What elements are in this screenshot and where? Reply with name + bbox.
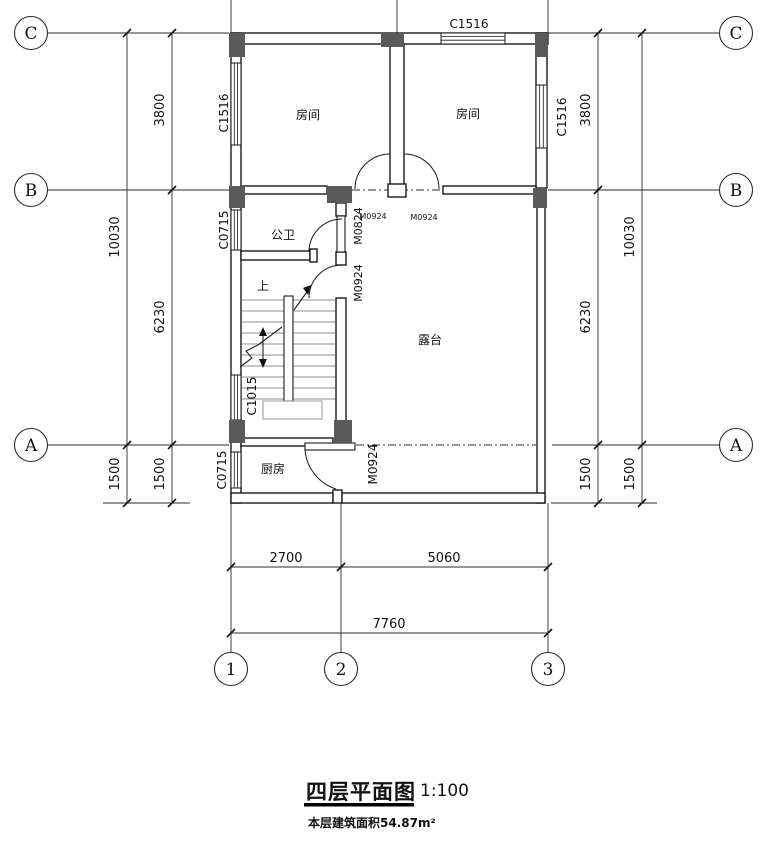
dim-bottom-7760: 7760: [372, 617, 405, 632]
dim-left-inner-6230: 6230: [153, 300, 168, 333]
axis-lines: [48, 0, 719, 652]
bathroom-bottom-jamb: [310, 249, 317, 262]
bottom-wall-jamb: [333, 490, 342, 503]
dim-bottom-5060: 5060: [427, 551, 460, 566]
axis-label-B-left: B: [25, 181, 38, 201]
label-window-right-room: C1516: [555, 98, 569, 137]
label-door-room-right: M0924: [410, 213, 437, 222]
stair-right-wall-mid: [336, 252, 346, 265]
room-divider-wall: [390, 44, 404, 190]
window-left-room-c1516: [231, 63, 241, 145]
dim-right-inner-6230: 6230: [579, 300, 594, 333]
stair-center-rail: [284, 296, 293, 401]
dim-left-inner-3800: 3800: [153, 93, 168, 126]
kitchen-door-leaf: [305, 443, 355, 450]
dimension-lines: [103, 33, 657, 633]
axis-label-2: 2: [336, 660, 347, 680]
label-kitchen: 厨房: [261, 461, 285, 476]
hall-door-arc: [309, 265, 342, 298]
dim-bottom-2700: 2700: [269, 551, 302, 566]
label-door-hall: M0924: [352, 264, 365, 302]
window-bathroom-c0715: [231, 210, 241, 250]
bottom-wall-left: [231, 493, 333, 503]
label-window-top: C1516: [450, 17, 489, 31]
stair-break-arrow-up: [259, 327, 267, 336]
dim-right-inner-3800: 3800: [579, 93, 594, 126]
dimension-texts: 10030 1500 3800 6230 1500 3800 6230 1500…: [108, 93, 638, 632]
dim-left-outer-1500: 1500: [108, 457, 123, 490]
label-room-left: 房间: [296, 107, 320, 122]
title-underline: [304, 803, 414, 807]
drawing-scale: 1:100: [420, 781, 469, 801]
bottom-wall-right: [342, 493, 545, 503]
terrace-railing: [537, 207, 545, 503]
kitchen-door-arc: [305, 450, 336, 489]
stair-break-arrow-down: [259, 359, 267, 368]
area-note: 本层建筑面积54.87m²: [308, 815, 436, 830]
dim-right-outer-10030: 10030: [623, 216, 638, 257]
b-wall-left: [241, 186, 327, 194]
bathroom-door-leaf: [337, 216, 345, 252]
stair-right-wall-top: [336, 203, 346, 216]
room-left-door-arc: [355, 154, 390, 189]
label-door-kitchen: M0924: [366, 444, 380, 485]
title-block: 四层平面图 1:100 本层建筑面积54.87m²: [304, 780, 469, 830]
bathroom-bottom-wall: [241, 251, 310, 260]
drawing-title: 四层平面图: [306, 780, 416, 804]
stair-right-wall-low: [336, 298, 346, 422]
axis-label-1: 1: [226, 660, 237, 680]
b-wall-right: [443, 186, 536, 194]
axis-label-A-right: A: [729, 436, 743, 456]
b-wall-divider-jamb: [388, 184, 406, 197]
dim-left-inner-1500: 1500: [153, 457, 168, 490]
label-window-bathroom: C0715: [217, 211, 231, 250]
window-right-room-c1516: [536, 85, 547, 148]
stair-landing-outline: [263, 401, 322, 419]
label-window-left-room: C1516: [217, 94, 231, 133]
axis-label-C-left: C: [24, 24, 37, 44]
window-stair-c1015: [231, 375, 241, 420]
label-window-stair: C1015: [245, 377, 259, 416]
axis-label-A-left: A: [24, 436, 38, 456]
floor-plan-drawing: C B A C B A 1 2 3 10030 1500 3800 6230 1…: [0, 0, 769, 845]
label-bathroom: 公卫: [271, 228, 295, 242]
floor-plan-canvas: C B A C B A 1 2 3 10030 1500 3800 6230 1…: [0, 0, 769, 845]
label-stair-up: 上: [257, 279, 269, 293]
dim-right-outer-1500: 1500: [623, 457, 638, 490]
label-terrace: 露台: [418, 332, 442, 347]
label-room-right: 房间: [456, 106, 480, 121]
window-top-c1516: [441, 33, 505, 44]
axis-label-C-right: C: [729, 24, 742, 44]
window-kitchen-c0715: [231, 452, 241, 488]
walls: [231, 33, 548, 503]
dim-right-inner-1500: 1500: [579, 457, 594, 490]
label-window-kitchen: C0715: [215, 451, 229, 490]
axis-label-B-right: B: [730, 181, 743, 201]
label-door-bathroom: M0824: [352, 207, 365, 245]
axis-label-3: 3: [543, 660, 554, 680]
room-right-door-arc: [404, 154, 439, 189]
dim-left-outer-10030: 10030: [108, 216, 123, 257]
